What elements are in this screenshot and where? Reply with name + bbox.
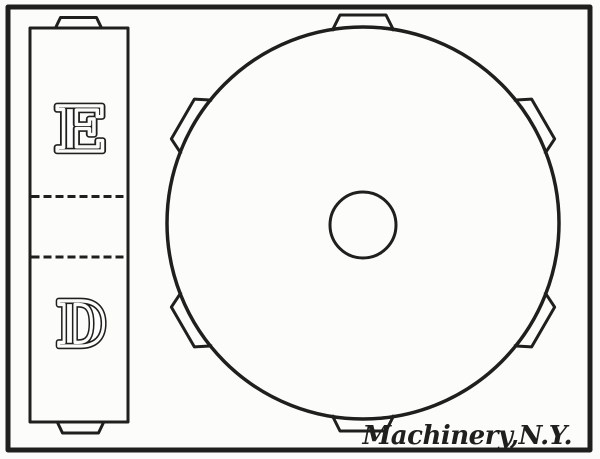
figure-canvas: E E D D xyxy=(0,0,600,459)
engraving-figure: E E D D xyxy=(0,0,600,459)
credit-text: Machinery,N.Y. xyxy=(362,421,572,451)
shaft-body xyxy=(30,28,128,422)
section-label-d: D xyxy=(56,288,106,361)
shaft-side-view: E E D D xyxy=(30,18,128,434)
section-label-e: E xyxy=(54,93,106,166)
clutch-disc-front-view xyxy=(167,15,559,431)
disc-outline xyxy=(167,27,559,419)
